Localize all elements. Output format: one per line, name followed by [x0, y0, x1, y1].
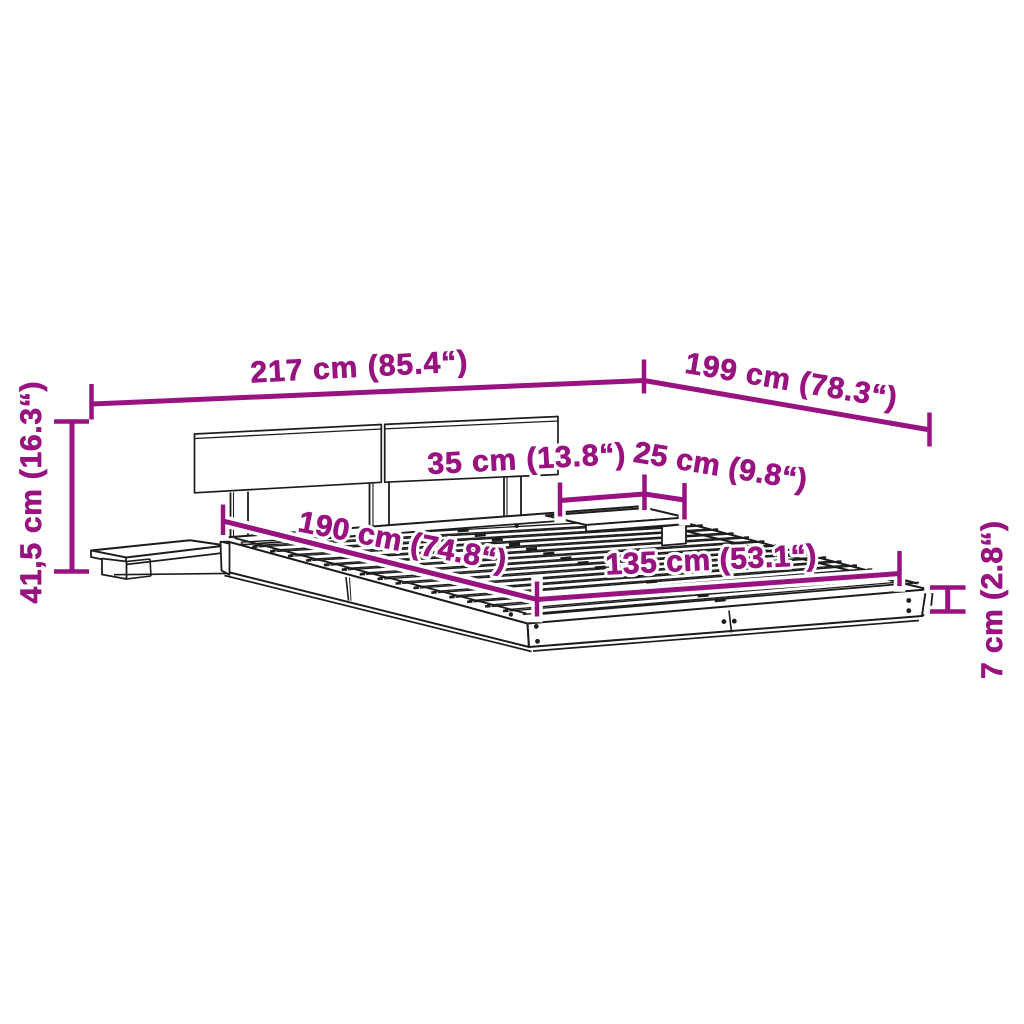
svg-text:7 cm (2.8“): 7 cm (2.8“): [976, 521, 1009, 679]
svg-text:41,5 cm (16.3“): 41,5 cm (16.3“): [15, 382, 48, 604]
